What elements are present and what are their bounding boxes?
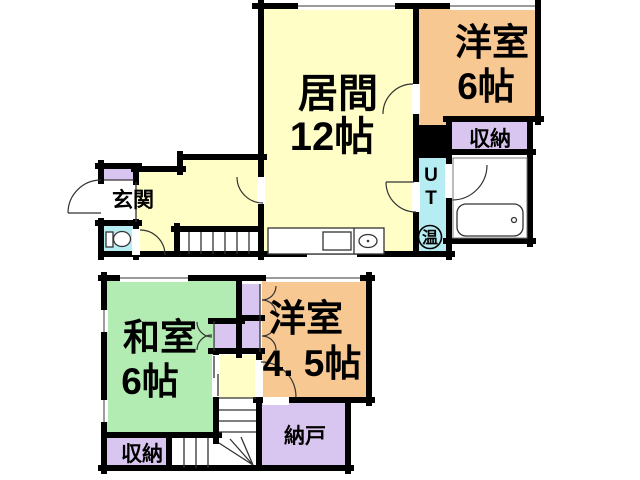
label-water-heater: 温 — [421, 229, 438, 247]
toilet-bowl-icon — [114, 232, 131, 247]
door-gap-living — [257, 177, 265, 204]
toilet-fixture — [106, 232, 131, 248]
door-gap-utility — [412, 182, 420, 212]
label-western6-name: 洋室 — [455, 21, 529, 63]
bathtub-drain — [512, 218, 517, 223]
label-western45-size: 4. 5帖 — [263, 343, 362, 384]
label-western45-name: 洋室 — [269, 297, 343, 339]
label-storage-2f: 収納 — [121, 442, 163, 466]
label-storage-1f: 収納 — [469, 127, 511, 151]
floorplan-canvas: 居間 12帖 洋室 6帖 収納 玄関 U T 温 和室 6帖 洋室 4. 5帖 … — [0, 0, 640, 480]
label-entrance: 玄関 — [112, 188, 154, 212]
japanese-closet — [214, 321, 236, 351]
label-living-size: 12帖 — [290, 115, 375, 159]
door-gap-bathroom — [445, 164, 453, 198]
label-nando: 納戸 — [284, 424, 326, 448]
door-gap-western6 — [412, 84, 420, 114]
landing-2f — [219, 355, 256, 398]
label-ut-u: U — [424, 165, 438, 186]
entrance-closet — [104, 169, 134, 180]
toilet-tank — [106, 232, 113, 247]
door-gap-toilet — [132, 229, 140, 255]
label-western6-size: 6帖 — [457, 66, 515, 107]
door-gap-japanese-sliding — [212, 355, 220, 397]
stove-knob-dot — [367, 240, 370, 243]
label-japanese-name: 和室 — [123, 316, 197, 358]
floorplan-svg: 居間 12帖 洋室 6帖 収納 玄関 U T 温 和室 6帖 洋室 4. 5帖 … — [0, 0, 640, 480]
door-gap-nando — [263, 397, 289, 405]
label-japanese-size: 6帖 — [121, 361, 179, 402]
entrance-door-arc — [68, 180, 101, 213]
kitchen-counter — [268, 228, 384, 254]
label-ut-t: T — [425, 188, 437, 209]
label-living-name: 居間 — [298, 72, 378, 116]
kitchen-sink — [323, 232, 351, 250]
